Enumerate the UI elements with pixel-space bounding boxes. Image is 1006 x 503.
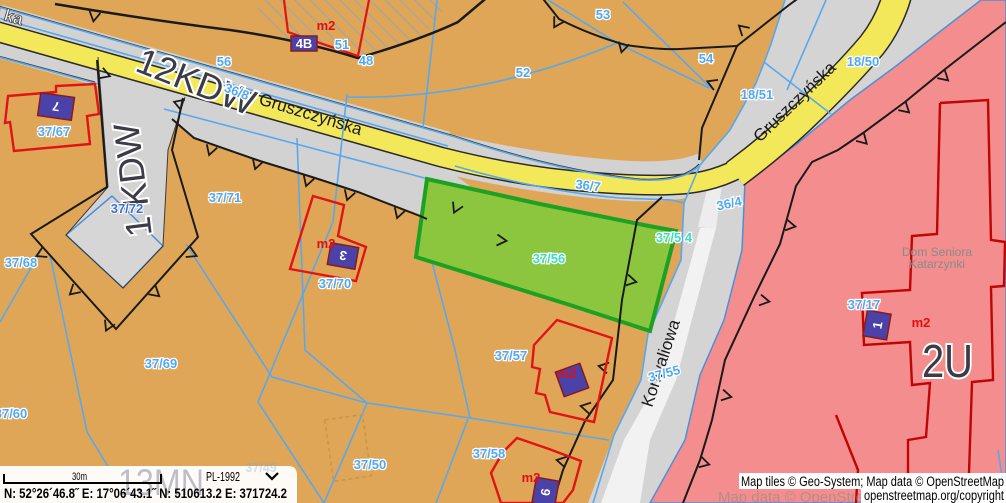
svg-text:N: 52°26´46.8˝ E: 17°06´43.1˝: N: 52°26´46.8˝ E: 17°06´43.1˝ N: 510613.… <box>4 486 287 501</box>
svg-text:37/70: 37/70 <box>319 276 352 291</box>
svg-text:54: 54 <box>699 51 714 66</box>
svg-text:4B: 4B <box>296 36 313 51</box>
svg-text:m2: m2 <box>317 18 336 33</box>
svg-text:37/60: 37/60 <box>0 406 27 421</box>
svg-text:37/50: 37/50 <box>354 457 387 472</box>
svg-text:PL-1992: PL-1992 <box>206 470 240 484</box>
svg-text:Katarzynki: Katarzynki <box>909 257 965 271</box>
svg-text:37/49: 37/49 <box>245 461 276 475</box>
svg-text:37/17: 37/17 <box>848 297 881 312</box>
svg-text:53: 53 <box>596 7 610 22</box>
svg-text:56: 56 <box>217 54 231 69</box>
svg-text:37/69: 37/69 <box>145 356 178 371</box>
svg-text:18/51: 18/51 <box>741 87 774 102</box>
svg-text:51: 51 <box>335 37 349 52</box>
svg-text:36/7: 36/7 <box>575 177 602 195</box>
svg-text:Map tiles © Geo-System; Map da: Map tiles © Geo-System; Map data © OpenS… <box>741 474 1004 489</box>
svg-text:openstreetmap.org/copyright: openstreetmap.org/copyright <box>864 488 1004 503</box>
svg-text:37/68: 37/68 <box>5 255 38 270</box>
svg-text:m2: m2 <box>522 470 541 485</box>
svg-text:52: 52 <box>516 65 530 80</box>
svg-text:37/71: 37/71 <box>209 190 242 205</box>
svg-text:37/58: 37/58 <box>473 446 506 461</box>
svg-text:2U: 2U <box>922 335 973 387</box>
svg-text:18/50: 18/50 <box>847 54 880 69</box>
svg-text:37/67: 37/67 <box>38 124 71 139</box>
svg-text:m2: m2 <box>558 366 577 381</box>
svg-text:m2: m2 <box>317 236 336 251</box>
svg-text:48: 48 <box>359 53 373 68</box>
svg-text:37/56: 37/56 <box>533 251 566 266</box>
svg-text:30m: 30m <box>72 471 87 483</box>
svg-text:37/5 4: 37/5 4 <box>656 230 693 245</box>
svg-text:m2: m2 <box>912 315 931 330</box>
svg-text:37/72: 37/72 <box>111 201 144 216</box>
svg-text:37/57: 37/57 <box>495 348 528 363</box>
